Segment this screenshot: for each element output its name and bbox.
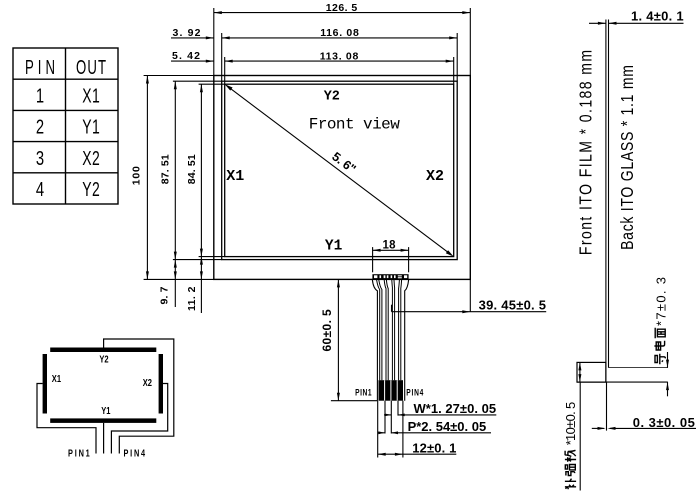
svg-text:P*2. 54±0. 05: P*2. 54±0. 05 xyxy=(408,419,487,434)
svg-text:60±0. 5: 60±0. 5 xyxy=(320,309,334,352)
svg-text:W*1. 27±0. 05: W*1. 27±0. 05 xyxy=(413,401,496,416)
svg-text:5. 42: 5. 42 xyxy=(172,50,200,62)
svg-text:5. 6": 5. 6" xyxy=(329,149,358,176)
svg-text:2: 2 xyxy=(36,116,44,139)
svg-text:PIN: PIN xyxy=(25,56,55,78)
svg-text:113. 08: 113. 08 xyxy=(320,50,359,62)
svg-text:39. 45±0. 5: 39. 45±0. 5 xyxy=(479,298,546,313)
svg-text:84. 51: 84. 51 xyxy=(186,154,198,184)
svg-text:OUT: OUT xyxy=(76,56,106,78)
svg-text:12±0. 1: 12±0. 1 xyxy=(412,440,456,455)
svg-text:PIN4: PIN4 xyxy=(406,387,424,397)
svg-text:X2: X2 xyxy=(426,168,444,185)
svg-text:Front ITO FILM * 0.188 mm: Front ITO FILM * 0.188 mm xyxy=(576,50,596,255)
svg-text:126. 5: 126. 5 xyxy=(326,2,358,14)
svg-text:18: 18 xyxy=(383,240,397,252)
svg-text:X1: X1 xyxy=(226,168,244,185)
svg-text:9. 7: 9. 7 xyxy=(159,286,171,304)
svg-text:Y2: Y2 xyxy=(82,178,100,201)
svg-text:4: 4 xyxy=(36,178,44,201)
svg-text:Y2: Y2 xyxy=(324,89,340,104)
svg-text:11. 2: 11. 2 xyxy=(186,286,198,311)
svg-text:PIN1: PIN1 xyxy=(68,447,90,459)
svg-text:0. 3±0. 05: 0. 3±0. 05 xyxy=(633,415,695,430)
svg-text:*7±0. 3: *7±0. 3 xyxy=(654,277,669,326)
svg-text:X1: X1 xyxy=(82,84,100,107)
svg-text:1. 4±0. 1: 1. 4±0. 1 xyxy=(631,9,684,24)
svg-text:X2: X2 xyxy=(143,377,152,388)
svg-text:Y2: Y2 xyxy=(99,353,108,364)
svg-text:Y1: Y1 xyxy=(82,115,100,138)
svg-text:*10±0. 5: *10±0. 5 xyxy=(563,402,578,446)
svg-text:PIN1: PIN1 xyxy=(355,387,372,397)
svg-text:Back ITO GLASS * 1.1 mm: Back ITO GLASS * 1.1 mm xyxy=(618,65,638,250)
svg-text:Front view: Front view xyxy=(309,116,400,134)
svg-text:Y1: Y1 xyxy=(325,239,343,255)
svg-text:X2: X2 xyxy=(82,146,100,169)
svg-text:3: 3 xyxy=(36,147,44,170)
svg-text:3. 92: 3. 92 xyxy=(173,27,201,39)
svg-text:87. 51: 87. 51 xyxy=(160,154,172,184)
svg-text:PIN4: PIN4 xyxy=(123,447,145,459)
svg-text:116. 08: 116. 08 xyxy=(320,27,359,39)
svg-text:X1: X1 xyxy=(52,373,61,384)
svg-text:100: 100 xyxy=(131,166,143,185)
svg-text:1: 1 xyxy=(36,84,44,107)
svg-text:Y1: Y1 xyxy=(101,405,110,416)
